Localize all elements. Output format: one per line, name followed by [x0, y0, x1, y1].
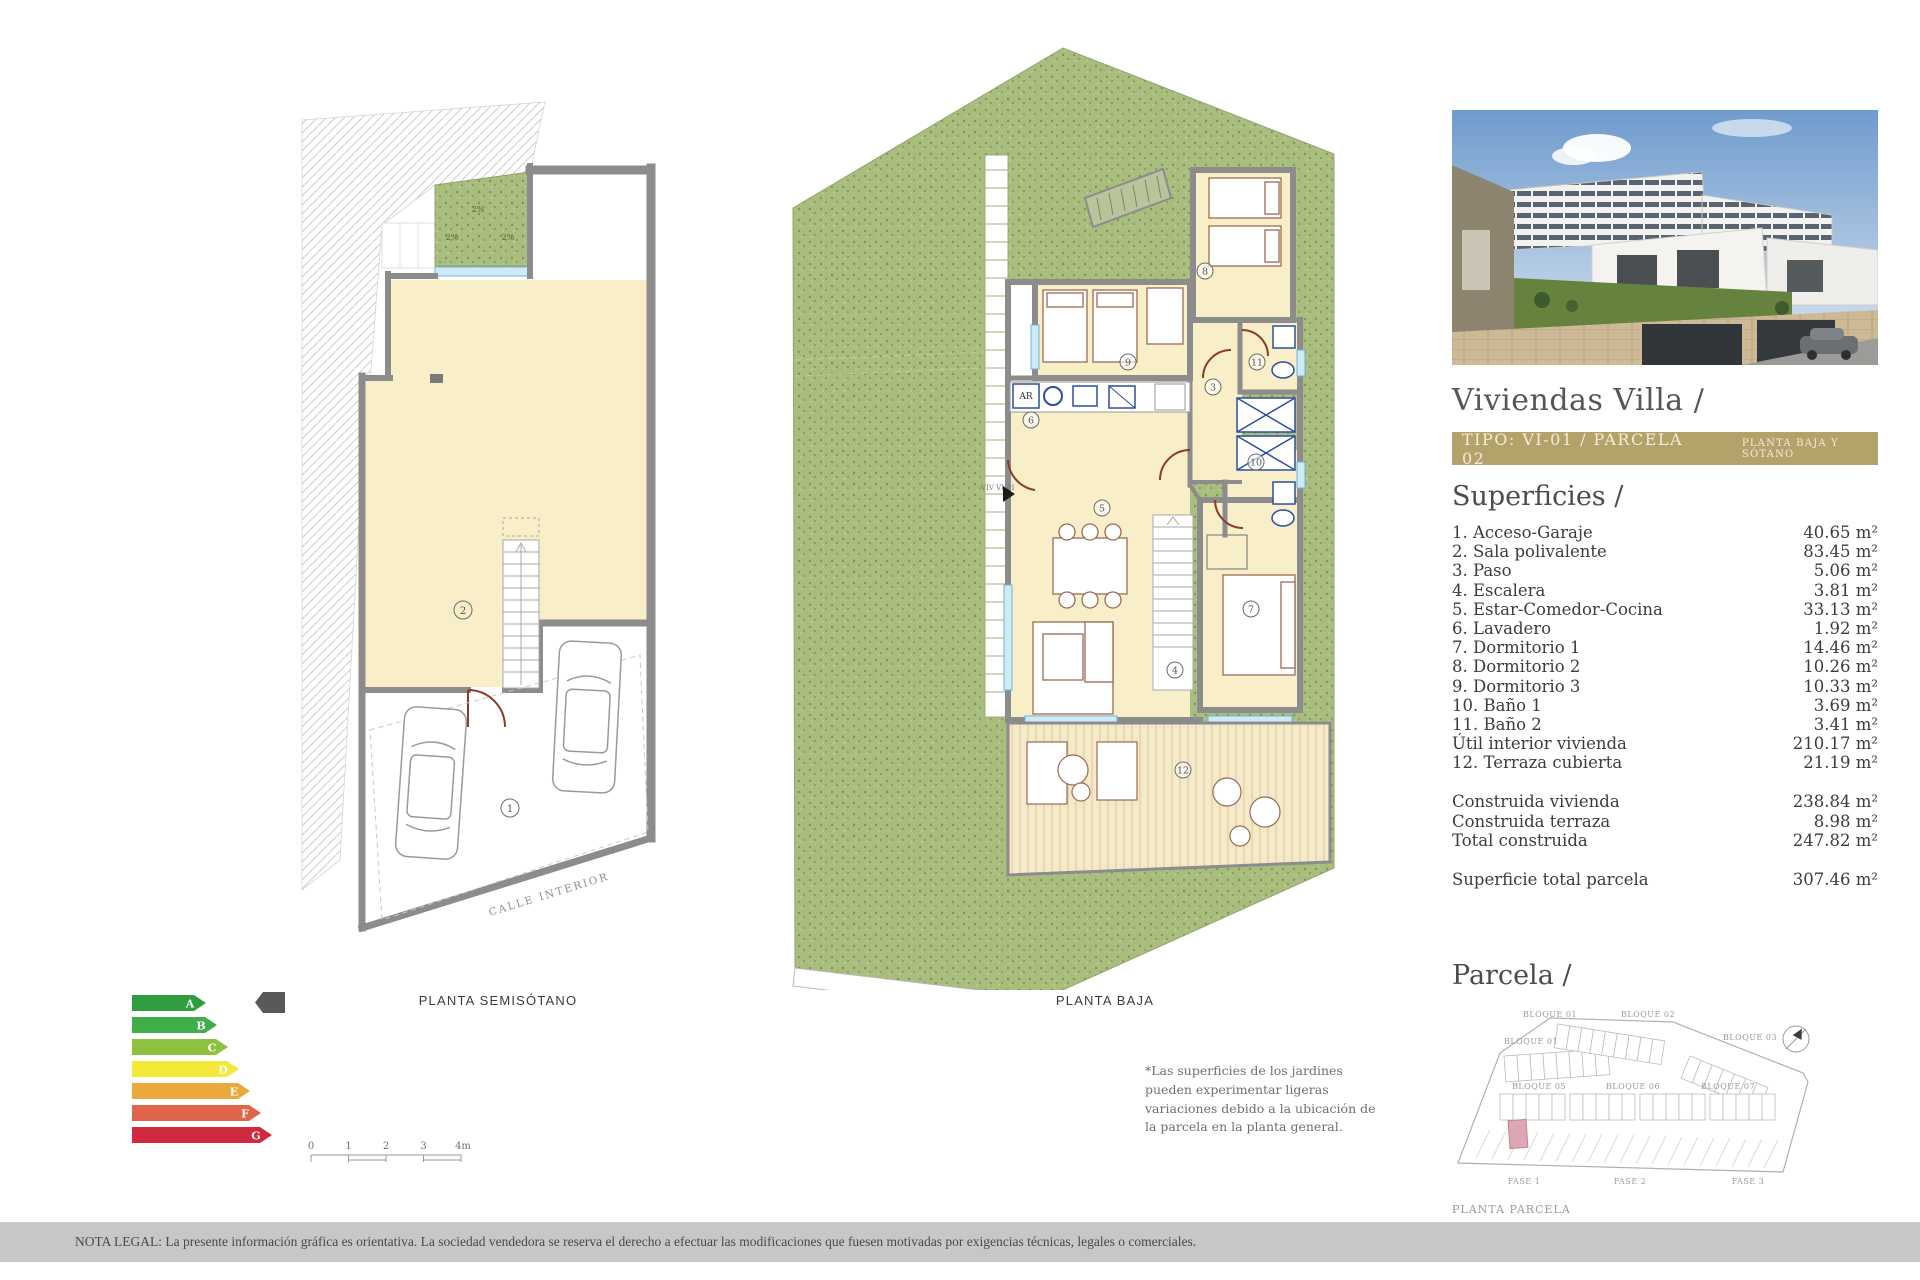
energy-row: D: [132, 1061, 332, 1077]
svg-text:6: 6: [1028, 416, 1034, 427]
svg-text:1: 1: [507, 804, 513, 815]
project-photo: [1452, 110, 1878, 365]
ar-label: AR: [1018, 392, 1032, 402]
svg-text:E: E: [230, 1086, 238, 1099]
svg-text:4m: 4m: [455, 1141, 471, 1152]
svg-text:D: D: [218, 1064, 228, 1077]
car: [552, 640, 622, 793]
energy-arrow: [132, 995, 206, 1011]
legal-bar: NOTA LEGAL: La presente información gráf…: [0, 1222, 1920, 1262]
svg-text:3: 3: [1210, 383, 1216, 394]
energy-row: E: [132, 1083, 332, 1099]
floor-plan-semisotano: 2% 2% 2%: [300, 90, 680, 970]
block-label: BLOQUE 06: [1606, 1082, 1660, 1091]
svg-text:11: 11: [1251, 358, 1263, 369]
superficies-row: 4. Escalera3.81 m²: [1452, 581, 1878, 600]
page-title: Viviendas Villa /: [1452, 383, 1882, 418]
parcela-heading: Parcela /: [1452, 960, 1571, 991]
fase-label: FASE 2: [1614, 1177, 1647, 1186]
superficies-list: 1. Acceso-Garaje40.65 m² 2. Sala polival…: [1452, 523, 1878, 889]
fase-label: FASE 3: [1732, 1177, 1765, 1186]
svg-text:G: G: [251, 1130, 260, 1143]
kitchen-counter: AR: [1010, 382, 1190, 412]
superficies-row: 9. Dormitorio 310.33 m²: [1452, 677, 1878, 696]
svg-text:5: 5: [1099, 504, 1105, 515]
energy-row: A: [132, 995, 332, 1011]
site-plan: BLOQUE 01 BLOQUE 02 BLOQUE 03 BLOQUE 01 …: [1452, 1008, 1882, 1208]
garden-note: *Las superficies de los jardines pueden …: [1145, 1062, 1383, 1137]
svg-text:8: 8: [1202, 267, 1208, 278]
block-label: BLOQUE 02: [1621, 1010, 1675, 1019]
slope-mark: 2%: [502, 233, 515, 242]
superficies-total-row: Construida vivienda238.84 m²: [1452, 792, 1878, 811]
structural-column: [430, 374, 443, 383]
tipo-main-label: TIPO: VI-01 / PARCELA 02: [1462, 430, 1684, 468]
energy-row: G: [132, 1127, 332, 1143]
superficies-row: 7. Dormitorio 114.46 m²: [1452, 638, 1878, 657]
svg-text:9: 9: [1125, 358, 1131, 369]
block-label: BLOQUE 03: [1723, 1033, 1777, 1042]
rating-pointer-icon: [255, 992, 285, 1013]
svg-text:A: A: [185, 998, 195, 1011]
svg-text:C: C: [208, 1042, 217, 1055]
svg-text:10: 10: [1250, 458, 1262, 469]
superficies-row: 6. Lavadero1.92 m²: [1452, 619, 1878, 638]
superficies-row: 1. Acceso-Garaje40.65 m²: [1452, 523, 1878, 542]
tipo-sub-label: PLANTA BAJA Y SÓTANO: [1742, 438, 1878, 460]
svg-text:7: 7: [1248, 605, 1254, 616]
parcela-caption: PLANTA PARCELA: [1452, 1203, 1571, 1216]
superficies-heading: Superficies /: [1452, 481, 1623, 512]
superficies-row: 12. Terraza cubierta21.19 m²: [1452, 753, 1878, 772]
dimension-grid: [382, 223, 435, 268]
superficies-row: 3. Paso5.06 m²: [1452, 561, 1878, 580]
superficies-row: 11. Baño 23.41 m²: [1452, 715, 1878, 734]
fase-label: FASE 1: [1508, 1177, 1541, 1186]
highlighted-parcel: [1508, 1119, 1528, 1148]
garage-door: [1642, 324, 1742, 365]
energy-rating-chart: A B C D E F G: [132, 995, 332, 1149]
svg-text:0: 0: [308, 1141, 314, 1152]
svg-text:2: 2: [460, 606, 466, 617]
slope-mark: 2%: [446, 233, 459, 242]
superficies-row: 10. Baño 13.69 m²: [1452, 696, 1878, 715]
block-label: BLOQUE 07: [1701, 1082, 1755, 1091]
svg-text:12: 12: [1177, 766, 1189, 777]
plan-label-baja: PLANTA BAJA: [995, 993, 1215, 1008]
parcel-total-row: Superficie total parcela307.46 m²: [1452, 870, 1878, 889]
energy-row: B: [132, 1017, 332, 1033]
svg-text:2: 2: [383, 1141, 389, 1152]
superficies-row: Útil interior vivienda210.17 m²: [1452, 734, 1878, 753]
block-label: BLOQUE 01: [1504, 1037, 1558, 1046]
svg-text:B: B: [196, 1020, 205, 1033]
svg-text:3: 3: [420, 1141, 426, 1152]
dining-table: [1053, 524, 1127, 608]
svg-text:4: 4: [1172, 666, 1178, 677]
slope-mark: 2%: [472, 205, 485, 214]
block-label: BLOQUE 01: [1523, 1010, 1577, 1019]
floor-plan-baja: AR: [785, 30, 1345, 990]
stairs: [503, 518, 539, 688]
svg-text:1: 1: [345, 1141, 351, 1152]
sofa: [1033, 622, 1113, 714]
superficies-row: 8. Dormitorio 210.26 m²: [1452, 657, 1878, 676]
legal-text: NOTA LEGAL: La presente información gráf…: [75, 1234, 1196, 1250]
plan-label-semisotano: PLANTA SEMISÓTANO: [388, 993, 608, 1008]
block-label: BLOQUE 05: [1512, 1082, 1566, 1091]
superficies-total-row: Total construida247.82 m²: [1452, 831, 1878, 850]
room-cream-right: [542, 545, 647, 620]
svg-text:F: F: [241, 1108, 249, 1121]
superficies-row: 5. Estar-Comedor-Cocina33.13 m²: [1452, 600, 1878, 619]
superficies-row: 2. Sala polivalente83.45 m²: [1452, 542, 1878, 561]
energy-row: C: [132, 1039, 332, 1055]
scale-bar: 0 1 2 3 4m: [303, 1138, 478, 1168]
tipo-bar: TIPO: VI-01 / PARCELA 02 PLANTA BAJA Y S…: [1452, 432, 1878, 465]
terrace-deck: [1008, 723, 1330, 875]
superficies-total-row: Construida terraza8.98 m²: [1452, 812, 1878, 831]
energy-row: F: [132, 1105, 332, 1121]
compass-icon: [1783, 1026, 1809, 1052]
garden-patch: [435, 172, 530, 266]
window-glass: [435, 267, 530, 276]
car: [395, 706, 467, 860]
